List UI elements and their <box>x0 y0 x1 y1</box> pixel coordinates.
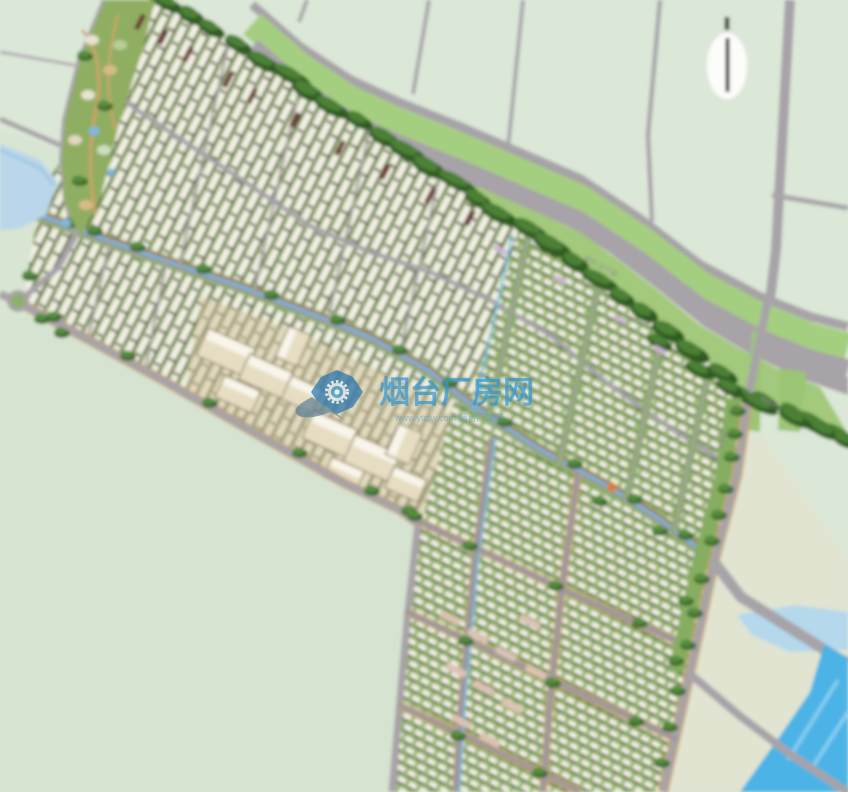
svg-text:www.ytcfw.com 烟台厂房网: www.ytcfw.com 烟台厂房网 <box>394 412 504 423</box>
svg-text:烟台厂房网: 烟台厂房网 <box>379 375 534 410</box>
